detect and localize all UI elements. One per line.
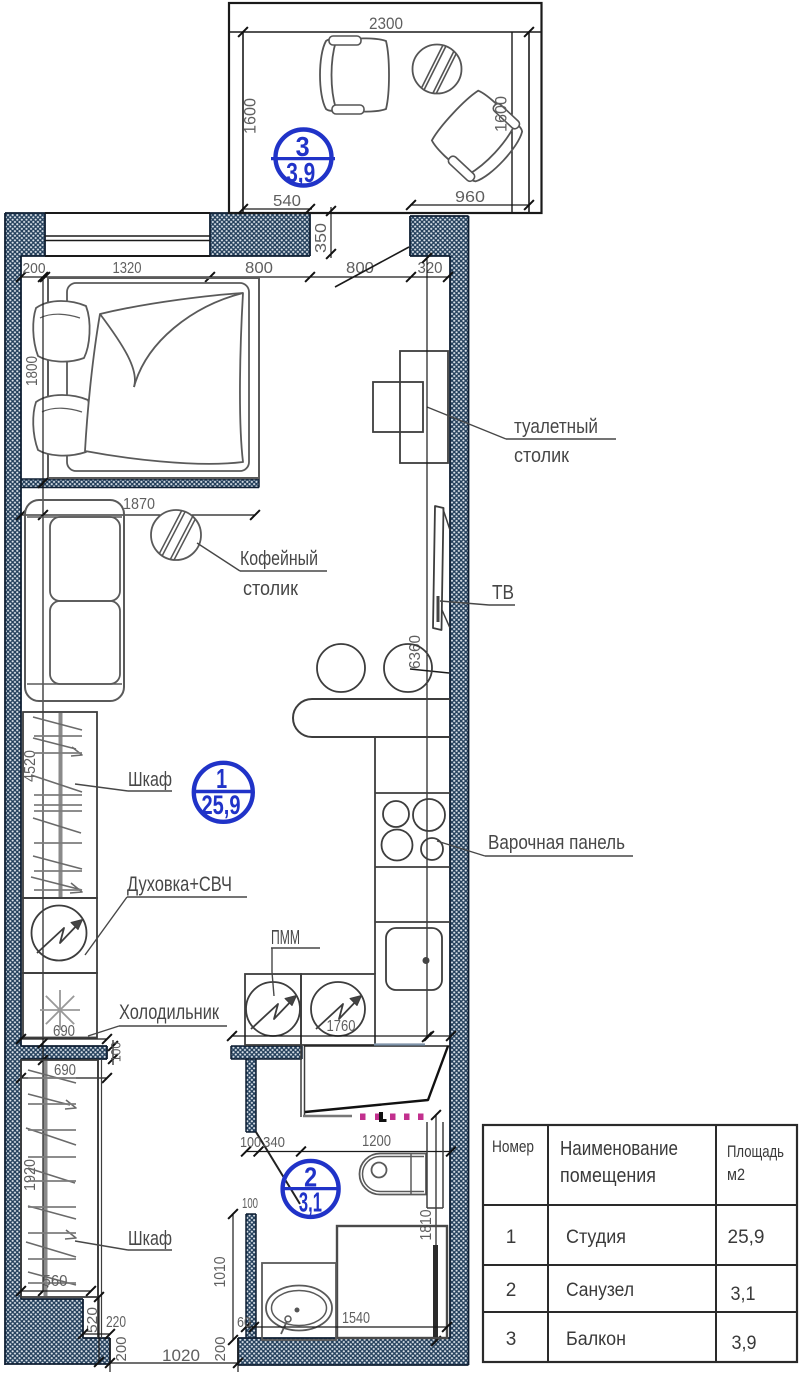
svg-text:690: 690	[53, 1023, 75, 1040]
svg-text:Шкаф: Шкаф	[128, 1228, 172, 1250]
svg-text:200: 200	[23, 260, 46, 277]
svg-text:100: 100	[240, 1134, 261, 1151]
svg-text:Студия: Студия	[566, 1227, 626, 1248]
svg-text:350: 350	[313, 223, 330, 253]
svg-text:Варочная панель: Варочная панель	[488, 832, 625, 854]
svg-text:200: 200	[212, 1337, 229, 1362]
svg-text:3,1: 3,1	[299, 1186, 322, 1217]
svg-text:ПММ: ПММ	[271, 927, 300, 949]
svg-text:100: 100	[242, 1195, 258, 1212]
svg-text:6360: 6360	[407, 635, 424, 669]
svg-text:Кофейный: Кофейный	[240, 548, 318, 570]
svg-text:1920: 1920	[22, 1159, 39, 1191]
svg-text:560: 560	[43, 1273, 68, 1290]
svg-text:100: 100	[108, 1042, 124, 1062]
svg-text:2300: 2300	[369, 14, 403, 33]
svg-text:Площадь: Площадь	[727, 1143, 784, 1161]
svg-text:25,9: 25,9	[202, 790, 241, 820]
svg-text:2: 2	[506, 1280, 517, 1301]
svg-text:помещения: помещения	[560, 1165, 656, 1187]
svg-text:1020: 1020	[162, 1346, 200, 1365]
svg-text:Духовка+СВЧ: Духовка+СВЧ	[127, 873, 232, 896]
svg-text:ТВ: ТВ	[492, 582, 514, 604]
svg-text:Номер: Номер	[492, 1137, 534, 1156]
svg-text:960: 960	[455, 189, 485, 206]
svg-text:1800: 1800	[24, 356, 41, 386]
svg-text:690: 690	[54, 1062, 76, 1079]
svg-text:200: 200	[113, 1337, 130, 1362]
svg-text:3,9: 3,9	[732, 1333, 757, 1354]
svg-text:1870: 1870	[123, 496, 155, 513]
svg-text:3,1: 3,1	[731, 1284, 756, 1305]
svg-text:1540: 1540	[342, 1310, 370, 1327]
svg-text:1200: 1200	[362, 1133, 391, 1150]
svg-text:Шкаф: Шкаф	[128, 769, 172, 791]
svg-text:1760: 1760	[327, 1018, 356, 1035]
svg-text:340: 340	[263, 1134, 285, 1151]
svg-text:25,9: 25,9	[728, 1227, 765, 1248]
svg-text:1010: 1010	[212, 1256, 229, 1287]
svg-text:800: 800	[245, 260, 273, 277]
svg-text:3,9: 3,9	[286, 157, 315, 188]
svg-text:1: 1	[506, 1227, 517, 1248]
svg-text:туалетный: туалетный	[514, 416, 598, 438]
svg-text:Санузел: Санузел	[566, 1280, 634, 1301]
svg-text:60: 60	[237, 1314, 251, 1331]
svg-text:Наименование: Наименование	[560, 1138, 678, 1160]
svg-text:Балкон: Балкон	[566, 1329, 626, 1350]
svg-text:320: 320	[418, 260, 443, 277]
svg-text:220: 220	[106, 1314, 126, 1331]
svg-text:1600: 1600	[240, 98, 259, 134]
svg-text:столик: столик	[243, 578, 298, 600]
svg-text:Холодильник: Холодильник	[119, 1001, 220, 1024]
svg-text:3: 3	[506, 1329, 517, 1350]
svg-text:540: 540	[273, 193, 301, 210]
svg-text:м2: м2	[727, 1166, 745, 1184]
svg-text:1600: 1600	[491, 96, 510, 132]
svg-text:столик: столик	[514, 445, 569, 467]
svg-text:1320: 1320	[113, 260, 142, 277]
